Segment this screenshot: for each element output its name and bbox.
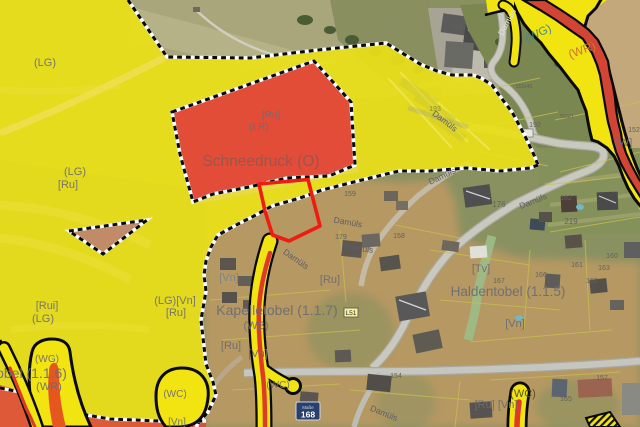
svg-text:[W]: [W] [616, 137, 633, 149]
svg-text:(LG): (LG) [64, 166, 86, 178]
svg-text:193: 193 [429, 106, 441, 113]
svg-text:[Ru]: [Ru] [320, 274, 340, 286]
svg-text:163: 163 [598, 265, 610, 272]
svg-text:[Ru] [Vn]: [Ru] [Vn] [475, 399, 518, 411]
svg-text:dertobel (1.1.6): dertobel (1.1.6) [0, 365, 67, 381]
svg-text:[Rui]: [Rui] [36, 300, 59, 312]
svg-text:(LG): (LG) [34, 57, 56, 69]
svg-text:152: 152 [628, 127, 640, 134]
svg-text:(WR): (WR) [36, 381, 62, 393]
svg-text:[Vn]: [Vn] [219, 272, 239, 284]
svg-text:(WG): (WG) [35, 354, 59, 365]
svg-text:555/1: 555/1 [560, 114, 574, 120]
svg-text:219: 219 [564, 217, 578, 226]
svg-text:[Ru]: [Ru] [221, 340, 241, 352]
svg-text:168: 168 [301, 410, 315, 420]
svg-text:192: 192 [529, 122, 541, 129]
svg-text:167: 167 [493, 278, 505, 285]
svg-text:(LG)[Vn]: (LG)[Vn] [154, 295, 196, 307]
svg-text:[Ru]: [Ru] [262, 110, 281, 121]
svg-text:(WC): (WC) [510, 388, 536, 400]
svg-text:161: 161 [571, 262, 583, 269]
svg-text:176: 176 [492, 200, 506, 209]
svg-text:166: 166 [535, 272, 547, 279]
svg-text:157: 157 [596, 375, 608, 382]
svg-text:[Vn]: [Vn] [505, 318, 525, 330]
svg-text:[Vn]: [Vn] [168, 417, 186, 427]
svg-text:Haldentobel (1.1.5): Haldentobel (1.1.5) [451, 284, 566, 299]
svg-text:158: 158 [393, 233, 405, 240]
svg-text:(WC): (WC) [163, 389, 186, 400]
svg-text:L51: L51 [346, 310, 357, 317]
svg-text:[Ru]: [Ru] [166, 307, 186, 319]
svg-text:160: 160 [606, 253, 618, 260]
svg-text:[Tv]: [Tv] [472, 263, 490, 275]
svg-text:(LR): (LR) [249, 122, 268, 133]
svg-text:(LG): (LG) [32, 313, 54, 325]
svg-text:179: 179 [335, 234, 347, 241]
svg-text:[Ru]: [Ru] [58, 179, 78, 191]
svg-text:Schneedruck (O): Schneedruck (O) [202, 153, 319, 170]
svg-text:159: 159 [344, 191, 356, 198]
svg-text:[Vn]: [Vn] [248, 348, 268, 360]
svg-text:555/46: 555/46 [516, 84, 533, 90]
svg-text:(WB): (WB) [243, 320, 268, 332]
svg-text:191: 191 [451, 24, 463, 31]
svg-text:(WC): (WC) [266, 380, 289, 391]
svg-text:162: 162 [586, 278, 598, 285]
svg-text:182: 182 [560, 195, 572, 202]
svg-text:Kapelletobel (1.1.7): Kapelletobel (1.1.7) [216, 302, 337, 318]
svg-text:165: 165 [560, 396, 572, 403]
svg-text:154: 154 [390, 373, 402, 380]
